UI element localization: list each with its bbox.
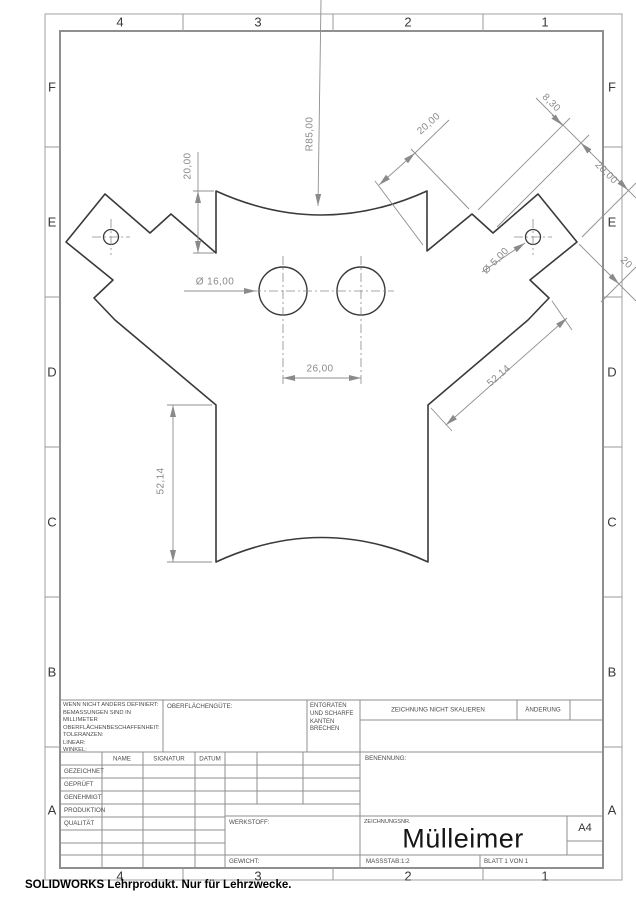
row-gezeichnet: GEZEICHNET: [64, 768, 104, 775]
deburr-note: ENTGRATEN UND SCHARFE KANTEN BRECHEN: [310, 703, 358, 734]
zone-row-c-right: C: [607, 515, 616, 530]
paper-format: A4: [578, 822, 591, 834]
dimension-lines: [167, 0, 636, 562]
zone-col-1-top: 1: [541, 15, 548, 30]
drawing-canvas: [0, 0, 636, 899]
name-header: NAME: [113, 756, 131, 763]
zone-row-c-left: C: [47, 515, 56, 530]
zone-row-b-left: B: [48, 665, 57, 680]
zone-row-a-right: A: [608, 803, 617, 818]
change-label: ÄNDERUNG: [525, 707, 560, 714]
zone-row-d-right: D: [607, 365, 616, 380]
row-genehmigt: GENEHMIGT: [64, 794, 101, 801]
row-geprueft: GEPRÜFT: [64, 781, 94, 788]
signature-header: SIGNATUR: [153, 756, 185, 763]
zone-row-e-right: E: [608, 215, 617, 230]
zone-row-d-left: D: [47, 365, 56, 380]
surface-finish-label: OBERFLÄCHENGÜTE:: [167, 703, 232, 710]
row-qualitaet: QUALITÄT: [64, 820, 94, 827]
weight-label: GEWICHT:: [229, 858, 259, 865]
dim-left-height: 52,14: [156, 467, 167, 494]
part-title: Mülleimer: [402, 824, 524, 855]
zone-row-f-left: F: [48, 80, 56, 95]
dim-hole-spacing: 26,00: [306, 364, 333, 375]
solidworks-footer: SOLIDWORKS Lehrprodukt. Nur für Lehrzwec…: [25, 879, 291, 891]
zone-row-a-left: A: [48, 803, 57, 818]
row-produktion: PRODUKTION: [64, 807, 105, 814]
dim-large-hole: Ø 16,00: [196, 277, 234, 288]
zone-col-3-top: 3: [254, 15, 261, 30]
benennung-label: BENENNUNG:: [365, 755, 406, 762]
date-header: DATUM: [199, 756, 221, 763]
zone-row-b-right: B: [608, 665, 617, 680]
zone-col-4-top: 4: [116, 15, 123, 30]
sheet-number-label: BLATT 1 VON 1: [484, 858, 528, 865]
drawing-sheet: { "sheet": { "footer": "SOLIDWORKS Lehrp…: [0, 0, 636, 899]
zone-row-f-right: F: [608, 80, 616, 95]
zone-col-2-bottom: 2: [404, 869, 411, 884]
tolerance-note: WENN NICHT ANDERS DEFINIERT: BEMASSUNGEN…: [63, 702, 161, 755]
dim-edge-height: 20,00: [183, 152, 194, 179]
dim-top-radius: R85,00: [305, 117, 316, 152]
zone-col-2-top: 2: [404, 15, 411, 30]
material-label: WERKSTOFF:: [229, 819, 269, 826]
no-scale-note: ZEICHNUNG NICHT SKALIEREN: [391, 707, 485, 714]
zone-row-e-left: E: [48, 215, 57, 230]
scale-label: MASSSTAB:1:2: [366, 858, 410, 865]
zone-col-1-bottom: 1: [541, 869, 548, 884]
